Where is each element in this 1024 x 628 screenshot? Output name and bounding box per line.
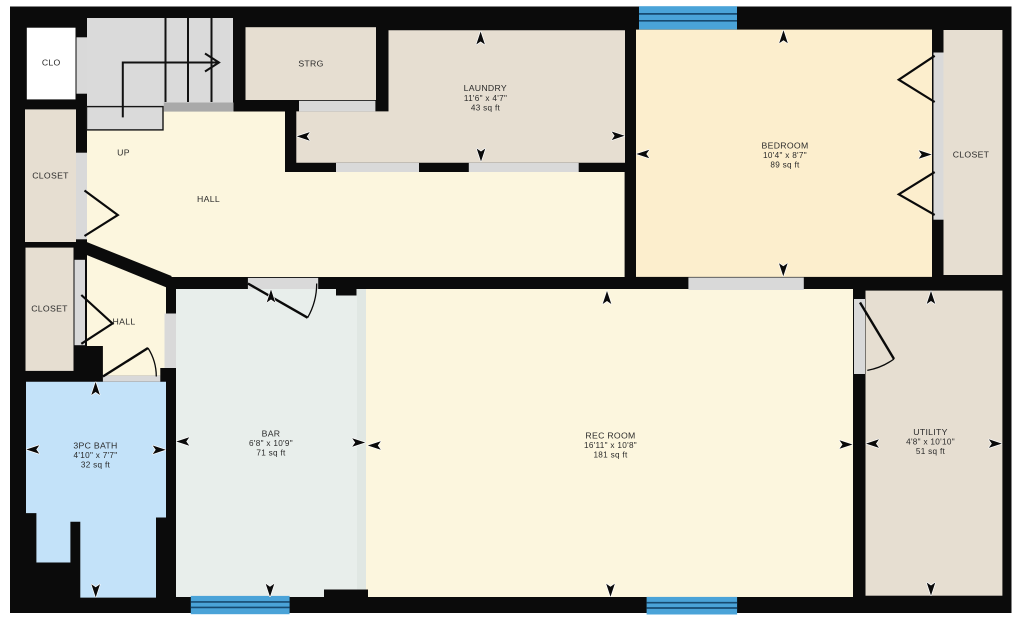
svg-text:REC ROOM: REC ROOM <box>585 430 635 440</box>
svg-text:CLOSET: CLOSET <box>32 171 69 181</box>
svg-text:BEDROOM: BEDROOM <box>762 140 809 150</box>
svg-text:CLOSET: CLOSET <box>953 149 990 159</box>
svg-text:4'10" x 7'7": 4'10" x 7'7" <box>74 451 118 460</box>
svg-text:89 sq ft: 89 sq ft <box>770 161 800 170</box>
svg-text:11'6" x 4'7": 11'6" x 4'7" <box>464 94 507 103</box>
svg-text:STRG: STRG <box>298 59 323 69</box>
svg-text:6'8" x 10'9": 6'8" x 10'9" <box>249 439 293 448</box>
svg-text:43 sq ft: 43 sq ft <box>471 103 501 112</box>
svg-text:4'8" x 10'10": 4'8" x 10'10" <box>906 438 955 447</box>
svg-text:181 sq ft: 181 sq ft <box>593 451 628 460</box>
svg-text:CLO: CLO <box>42 58 61 68</box>
svg-text:CLOSET: CLOSET <box>31 304 68 314</box>
svg-text:16'11" x 10'8": 16'11" x 10'8" <box>584 441 637 450</box>
svg-text:HALL: HALL <box>197 194 220 204</box>
svg-text:HALL: HALL <box>113 317 136 327</box>
svg-text:BAR: BAR <box>262 428 281 438</box>
svg-text:10'4" x 8'7": 10'4" x 8'7" <box>763 151 807 160</box>
svg-text:UTILITY: UTILITY <box>913 427 947 437</box>
svg-text:32 sq ft: 32 sq ft <box>81 461 111 470</box>
svg-text:LAUNDRY: LAUNDRY <box>464 83 507 93</box>
svg-text:51 sq ft: 51 sq ft <box>916 447 946 456</box>
svg-text:3PC BATH: 3PC BATH <box>73 440 117 450</box>
svg-text:71 sq ft: 71 sq ft <box>256 449 286 458</box>
svg-text:UP: UP <box>117 148 130 158</box>
